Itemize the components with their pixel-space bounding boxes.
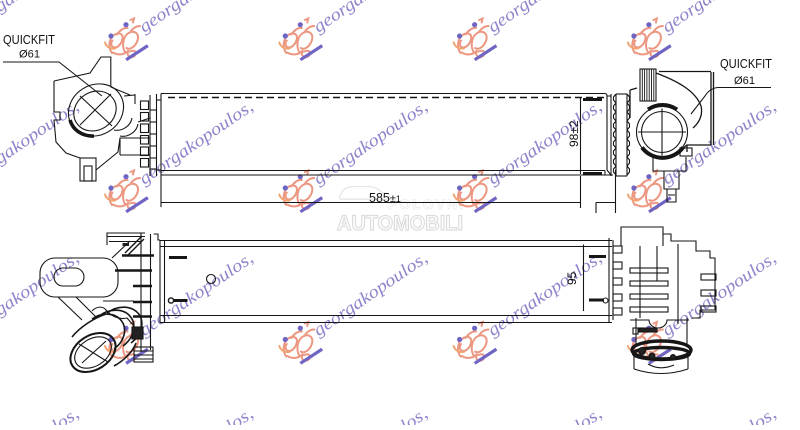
svg-text:95: 95	[565, 271, 579, 285]
svg-text:AUTOMOBILI: AUTOMOBILI	[337, 212, 463, 235]
svg-text:QUICKFIT: QUICKFIT	[720, 57, 772, 71]
svg-text:Ø61: Ø61	[19, 49, 40, 61]
svg-text:585±1: 585±1	[369, 191, 401, 205]
svg-text:Ø61: Ø61	[734, 75, 755, 87]
svg-text:98±2: 98±2	[567, 120, 581, 147]
svg-text:QUICKFIT: QUICKFIT	[3, 33, 55, 47]
